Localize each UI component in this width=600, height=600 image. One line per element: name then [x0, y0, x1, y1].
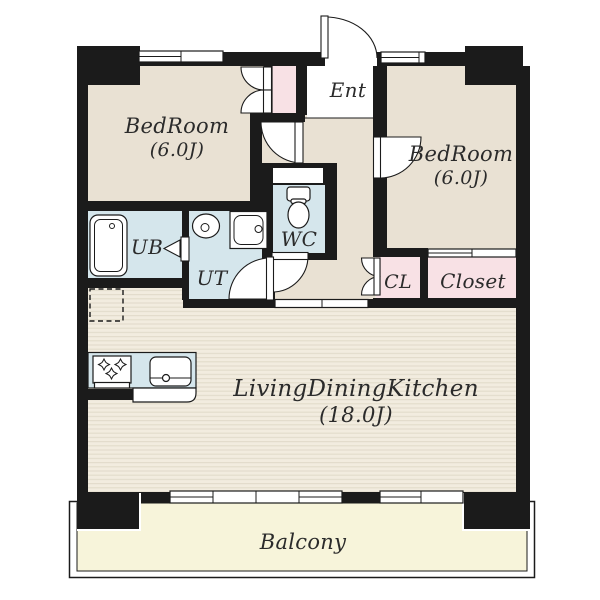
- wall-closet-bottom: [373, 298, 516, 308]
- utility-label: UT: [197, 266, 229, 290]
- closet-small-label: CL: [384, 271, 412, 293]
- wall-right: [516, 66, 530, 530]
- wall-kitchen-stub: [88, 389, 133, 400]
- ldk-balcony-window-left: [170, 491, 342, 503]
- wall-left: [77, 85, 88, 493]
- ldk-label: LivingDiningKitchen: [232, 376, 479, 402]
- wall-bedroom1-bottom: [77, 201, 270, 211]
- toilet-icon: [287, 187, 310, 228]
- wall-shoe-cabinet-right: [296, 52, 307, 115]
- balcony-label: Balcony: [259, 530, 347, 554]
- washbasin-icon: [193, 214, 220, 238]
- bedroom1-window: [139, 51, 223, 62]
- pillar-top-right: [465, 46, 523, 85]
- wall-bedroom2-left-lower: [373, 178, 387, 257]
- wall-ub-bottom: [77, 278, 183, 288]
- stove-icon: [93, 356, 131, 388]
- bathtub-icon: [90, 215, 127, 276]
- wc-shelf: [273, 168, 323, 183]
- closet-sliding-door: [428, 249, 516, 257]
- unit-bath-label: UB: [131, 235, 163, 259]
- wall-closet-divider: [420, 255, 428, 300]
- corridor-ldk-opening: [275, 300, 368, 308]
- floor-plan-page: BedRoom (6.0J) BedRoom (6.0J) Ent UB UT …: [0, 0, 600, 600]
- ldk-size: (18.0J): [319, 403, 393, 427]
- entrance-door: [321, 16, 377, 58]
- wall-bedroom1-right: [250, 113, 262, 201]
- kitchen-sink-icon: [150, 357, 191, 386]
- closet-large-label: Closet: [440, 269, 506, 293]
- floor-plan: BedRoom (6.0J) BedRoom (6.0J) Ent UB UT …: [0, 0, 600, 600]
- wall-closet-small-top: [373, 248, 428, 257]
- shoe-cabinet: [272, 66, 296, 115]
- wall-bedroom2-left-upper: [373, 62, 387, 137]
- bedroom2-window: [381, 52, 425, 63]
- bedroom1-size: (6.0J): [150, 139, 204, 161]
- pillar-bottom-left: [77, 493, 140, 530]
- wc-label: WC: [281, 227, 317, 251]
- washing-machine-icon: [230, 212, 267, 249]
- entrance-label: Ent: [329, 78, 367, 102]
- bedroom2-size: (6.0J): [434, 167, 488, 189]
- bedroom1-label: BedRoom: [124, 114, 229, 138]
- ldk-balcony-window-right: [380, 491, 463, 503]
- pillar-bottom-right: [463, 493, 530, 530]
- entrance-opening: [325, 52, 377, 66]
- bedroom2-label: BedRoom: [408, 142, 513, 166]
